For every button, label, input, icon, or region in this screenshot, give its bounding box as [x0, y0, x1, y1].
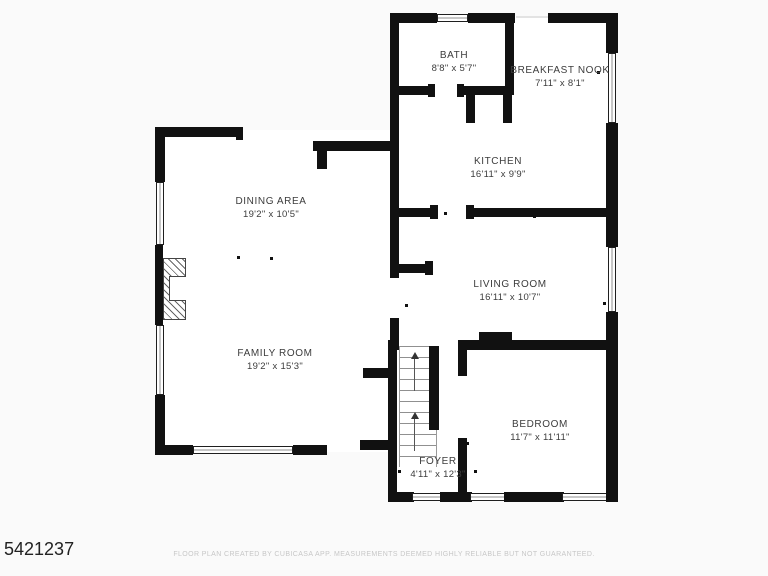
measure-marker	[444, 212, 447, 215]
wall-segment	[606, 217, 618, 247]
room-name: LIVING ROOM	[473, 279, 546, 290]
measure-marker	[405, 304, 408, 307]
wall-segment	[155, 127, 165, 182]
left-wing-fill	[158, 130, 394, 452]
wall-segment	[458, 340, 467, 376]
measure-marker	[474, 470, 477, 473]
measure-marker	[398, 470, 401, 473]
measure-marker	[270, 257, 273, 260]
room-label-kitchen: KITCHEN 16'11" x 9'9"	[470, 156, 525, 180]
room-dimensions: 16'11" x 9'9"	[470, 169, 525, 180]
wall-segment	[388, 340, 397, 502]
wall-segment	[466, 208, 618, 217]
wall-segment	[155, 445, 193, 455]
door-jamb	[425, 261, 433, 275]
fireplace-opening	[169, 276, 186, 301]
window	[156, 182, 164, 245]
room-label-bath: BATH 8'8" x 5'7"	[432, 50, 477, 74]
plan-id-label: 5421237	[4, 539, 74, 560]
room-name: BEDROOM	[510, 419, 569, 430]
room-name: DINING AREA	[235, 196, 306, 207]
measure-marker	[603, 302, 606, 305]
wall-segment	[317, 151, 327, 169]
room-label-breakfast-nook: BREAKFAST NOOK 7'11" x 8'1"	[510, 65, 609, 89]
door-jamb	[236, 127, 243, 140]
window	[193, 446, 293, 454]
room-dimensions: 19'2" x 10'5"	[235, 209, 306, 220]
room-dimensions: 19'2" x 15'3"	[237, 361, 312, 372]
wall-segment	[440, 492, 472, 502]
wall-segment	[457, 86, 514, 95]
wall-segment	[390, 13, 399, 95]
window	[470, 493, 506, 501]
room-dimensions: 16'11" x 10'7"	[473, 292, 546, 303]
door-jamb	[428, 84, 435, 97]
wall-segment	[503, 95, 512, 123]
room-name: FOYER	[410, 456, 465, 467]
room-name: FAMILY ROOM	[237, 348, 312, 359]
wall-segment	[548, 13, 610, 23]
measure-marker	[533, 215, 536, 218]
room-name: BATH	[432, 50, 477, 61]
wall-segment	[466, 95, 475, 123]
window	[608, 247, 616, 312]
wall-segment	[606, 492, 618, 502]
wall-segment	[360, 440, 389, 450]
room-label-family-room: FAMILY ROOM 19'2" x 15'3"	[237, 348, 312, 372]
measure-marker	[237, 256, 240, 259]
floor-plan: BATH 8'8" x 5'7" BREAKFAST NOOK 7'11" x …	[0, 0, 768, 576]
stair-arrow-shaft	[414, 359, 415, 391]
room-label-bedroom: BEDROOM 11'7" x 11'11"	[510, 419, 569, 443]
room-dimensions: 7'11" x 8'1"	[510, 78, 609, 89]
wall-segment	[313, 141, 393, 151]
wall-segment	[606, 13, 618, 53]
wall-opening-line	[516, 16, 549, 18]
stair-wall	[429, 346, 439, 430]
stair-arrow-shaft	[414, 419, 415, 451]
window	[156, 325, 164, 395]
room-dimensions: 4'11" x 12'3"	[410, 469, 465, 480]
door-jamb	[430, 205, 438, 219]
stair-up-arrow-icon	[411, 352, 419, 359]
room-name: BREAKFAST NOOK	[510, 65, 609, 76]
measure-marker	[580, 345, 583, 348]
room-label-foyer: FOYER 4'11" x 12'3"	[410, 456, 465, 480]
window	[562, 493, 608, 501]
wall-segment	[388, 492, 414, 502]
chimney-block	[479, 332, 512, 350]
room-label-dining-area: DINING AREA 19'2" x 10'5"	[235, 196, 306, 220]
wall-segment	[390, 95, 399, 216]
stair-up-arrow-icon	[411, 412, 419, 419]
wall-segment	[504, 492, 564, 502]
wall-segment	[395, 13, 437, 23]
wall-segment	[155, 245, 163, 325]
room-dimensions: 8'8" x 5'7"	[432, 63, 477, 74]
wall-segment	[293, 445, 327, 455]
wall-segment	[606, 123, 618, 210]
window	[437, 14, 468, 22]
room-name: KITCHEN	[470, 156, 525, 167]
wall-segment	[606, 350, 618, 502]
measure-marker	[295, 446, 298, 449]
room-label-living-room: LIVING ROOM 16'11" x 10'7"	[473, 279, 546, 303]
window	[412, 493, 442, 501]
measure-marker	[466, 442, 469, 445]
footer-disclaimer: FLOOR PLAN CREATED BY CUBICASA APP. MEAS…	[173, 551, 594, 558]
wall-segment	[155, 127, 241, 137]
room-dimensions: 11'7" x 11'11"	[510, 432, 569, 443]
wall-segment	[363, 368, 389, 378]
